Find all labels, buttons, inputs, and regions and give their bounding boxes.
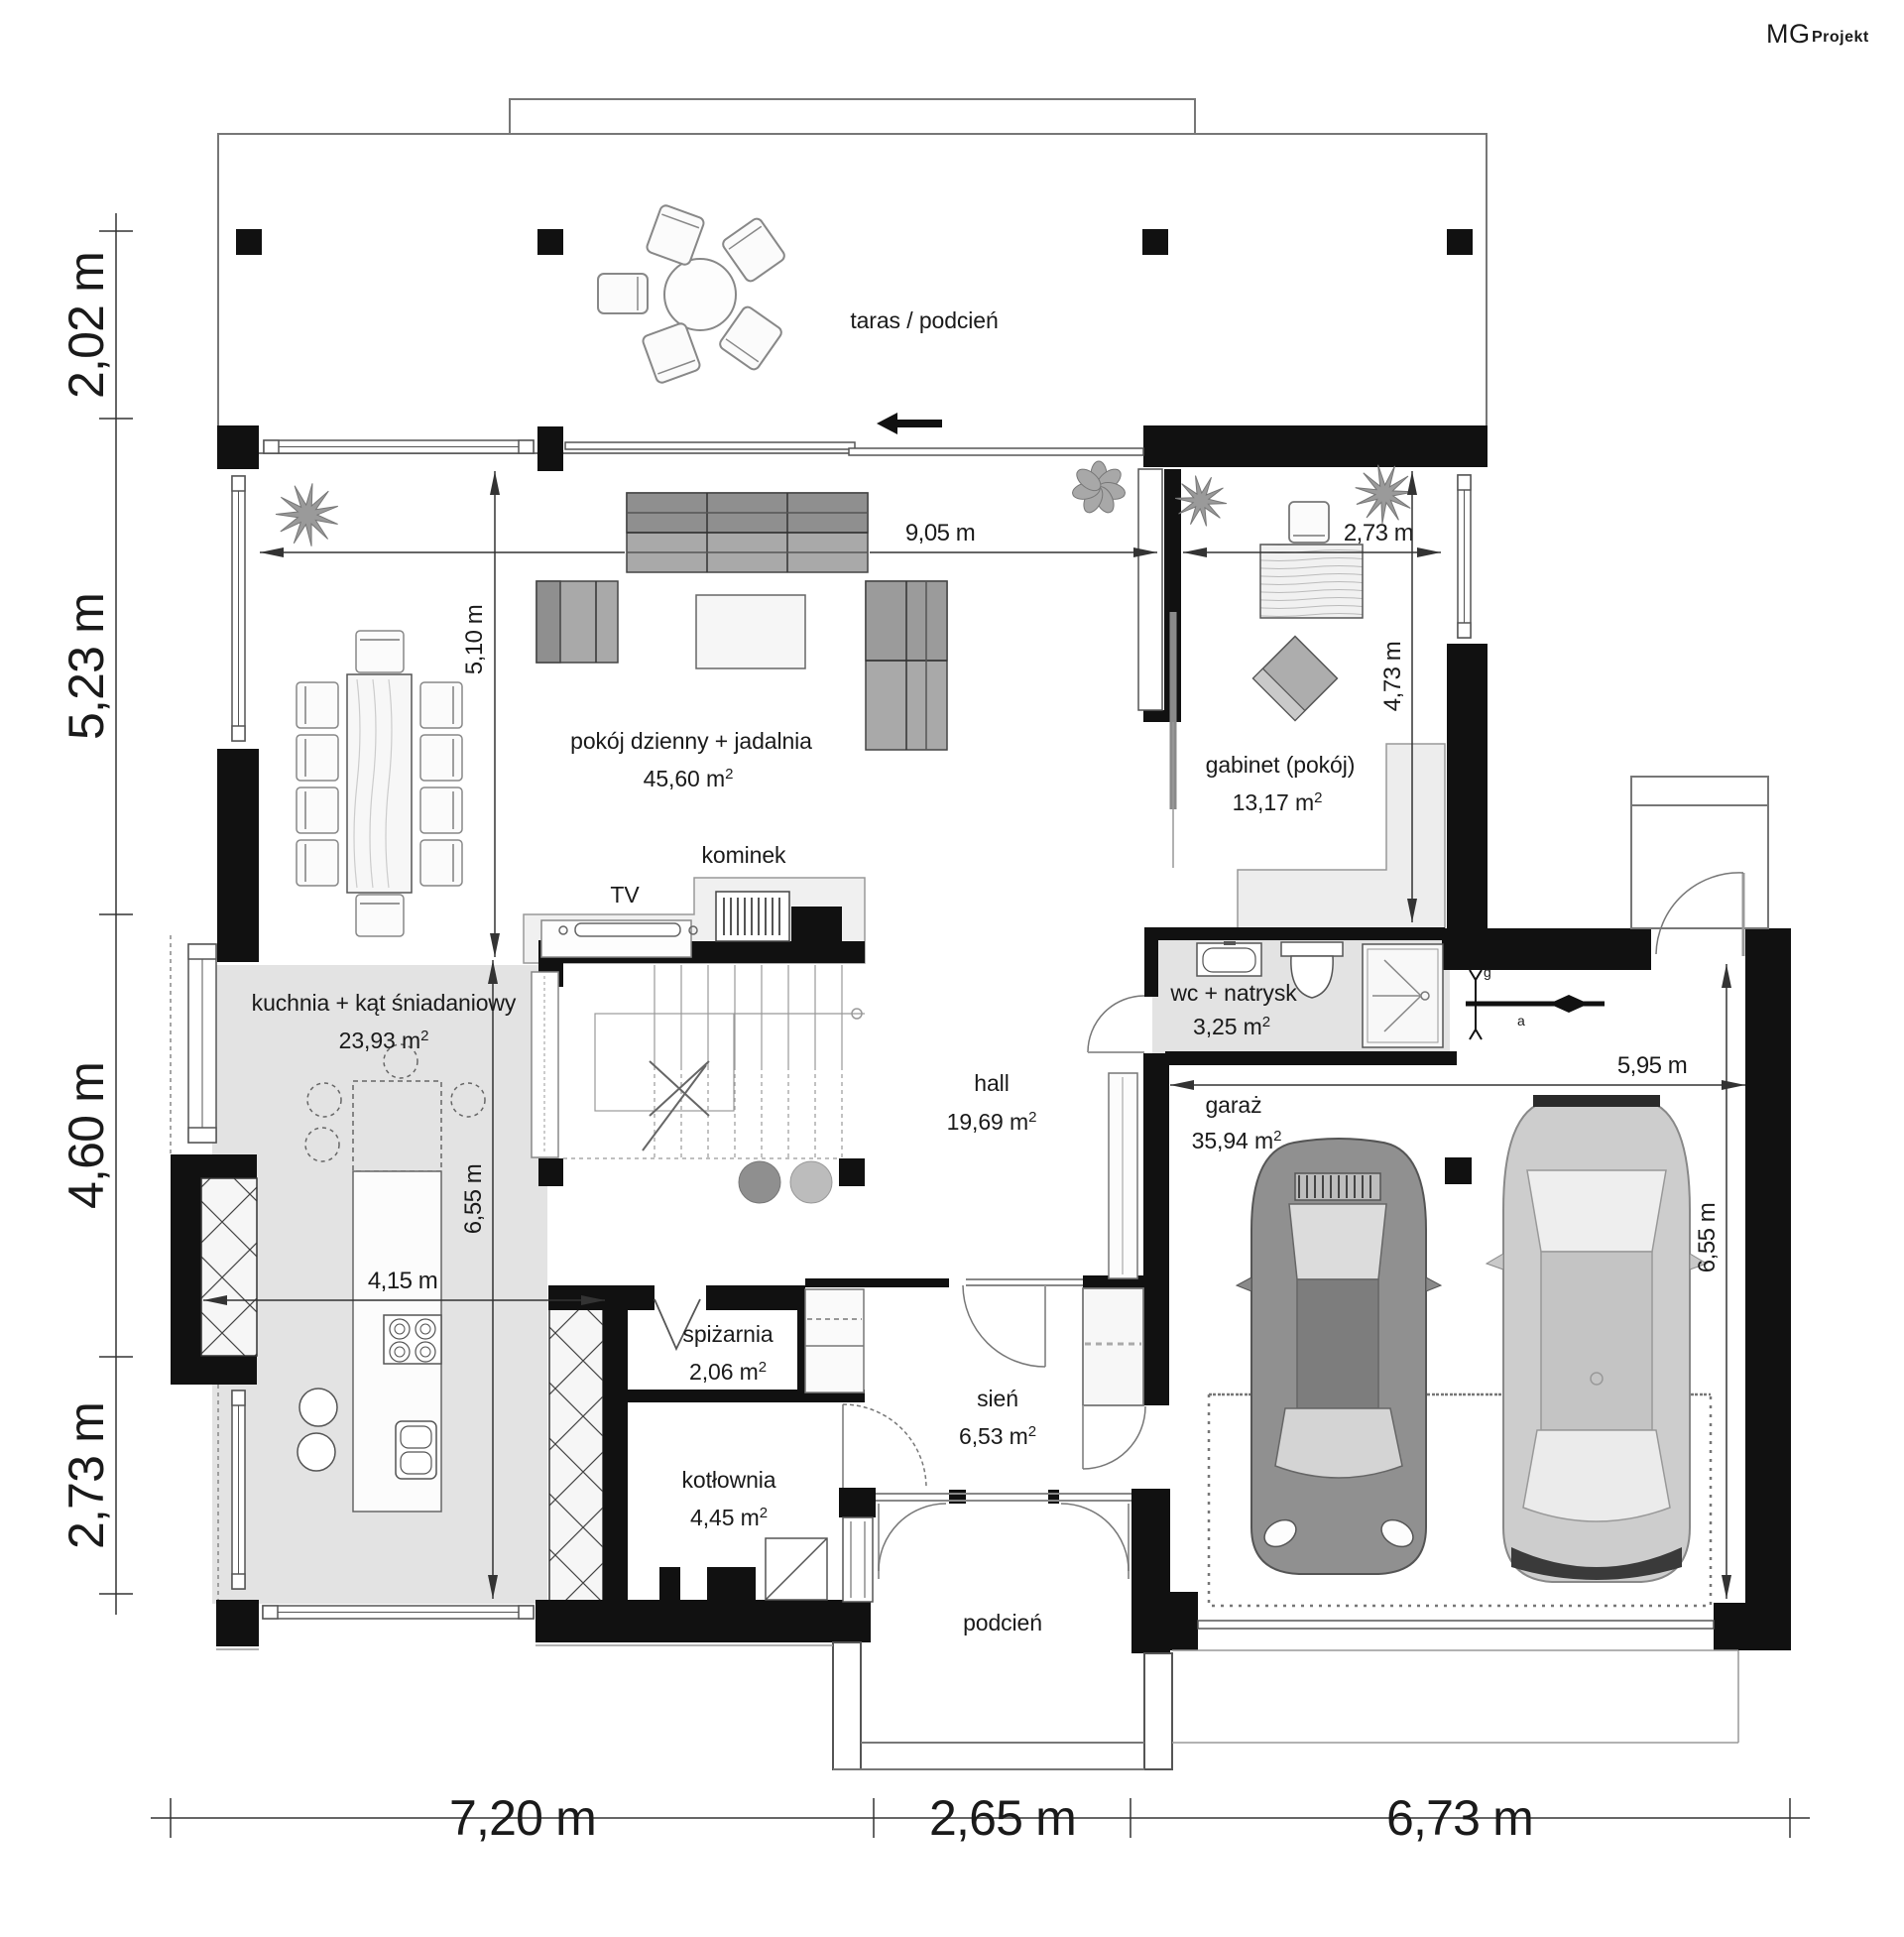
svg-text:gabinet (pokój): gabinet (pokój) — [1206, 752, 1356, 778]
svg-text:2,06 m2: 2,06 m2 — [689, 1359, 767, 1385]
svg-text:2,02 m: 2,02 m — [59, 252, 114, 399]
svg-text:6,53 m2: 6,53 m2 — [959, 1423, 1036, 1449]
svg-text:MG: MG — [1766, 19, 1811, 49]
svg-text:6,55 m: 6,55 m — [460, 1164, 487, 1234]
svg-text:4,15 m: 4,15 m — [368, 1268, 437, 1294]
svg-text:wc + natrysk: wc + natrysk — [1169, 980, 1297, 1006]
svg-text:23,93 m2: 23,93 m2 — [339, 1028, 429, 1053]
svg-text:garaż: garaż — [1205, 1092, 1261, 1118]
svg-text:2,73 m: 2,73 m — [59, 1402, 114, 1549]
svg-text:kominek: kominek — [702, 842, 787, 868]
svg-text:g: g — [1484, 964, 1491, 980]
svg-text:a: a — [1517, 1013, 1525, 1029]
svg-text:6,55 m: 6,55 m — [1694, 1203, 1721, 1272]
svg-text:kuchnia + kąt śniadaniowy: kuchnia + kąt śniadaniowy — [252, 990, 517, 1016]
svg-text:taras / podcień: taras / podcień — [850, 307, 998, 333]
svg-text:podcień: podcień — [963, 1610, 1042, 1635]
svg-text:kotłownia: kotłownia — [682, 1467, 776, 1493]
svg-text:2,73 m: 2,73 m — [1344, 520, 1413, 546]
svg-text:5,10 m: 5,10 m — [461, 605, 488, 674]
svg-text:2,65 m: 2,65 m — [929, 1790, 1076, 1846]
svg-text:spiżarnia: spiżarnia — [682, 1321, 773, 1347]
svg-text:sień: sień — [977, 1386, 1018, 1411]
svg-text:5,95 m: 5,95 m — [1617, 1052, 1687, 1079]
svg-text:TV: TV — [610, 882, 640, 908]
svg-text:5,23 m: 5,23 m — [59, 593, 114, 740]
svg-text:19,69 m2: 19,69 m2 — [947, 1109, 1037, 1135]
svg-text:13,17 m2: 13,17 m2 — [1233, 789, 1323, 815]
svg-text:3,25 m2: 3,25 m2 — [1193, 1014, 1270, 1039]
svg-text:9,05 m: 9,05 m — [905, 520, 975, 546]
svg-text:4,73 m: 4,73 m — [1379, 642, 1406, 711]
svg-text:hall: hall — [974, 1070, 1009, 1096]
svg-text:4,60 m: 4,60 m — [59, 1062, 114, 1209]
svg-text:Projekt: Projekt — [1812, 29, 1869, 46]
svg-text:45,60 m2: 45,60 m2 — [644, 766, 734, 791]
svg-text:35,94 m2: 35,94 m2 — [1192, 1128, 1282, 1153]
svg-text:pokój dzienny + jadalnia: pokój dzienny + jadalnia — [570, 728, 812, 754]
svg-text:7,20 m: 7,20 m — [449, 1790, 596, 1846]
svg-text:4,45 m2: 4,45 m2 — [690, 1505, 768, 1530]
svg-text:6,73 m: 6,73 m — [1386, 1790, 1533, 1846]
